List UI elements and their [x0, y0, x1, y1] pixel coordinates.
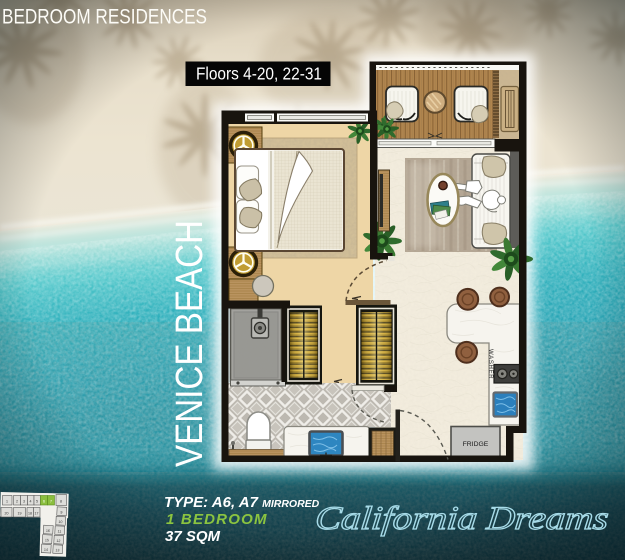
- svg-text:15: 15: [45, 538, 49, 542]
- svg-text:3: 3: [23, 500, 25, 504]
- svg-text:BEDROOM RESIDENCES: BEDROOM RESIDENCES: [2, 6, 207, 29]
- svg-text:13: 13: [55, 548, 59, 552]
- svg-text:2: 2: [16, 500, 18, 504]
- svg-text:20: 20: [5, 512, 9, 516]
- svg-text:1 BEDROOM: 1 BEDROOM: [166, 511, 268, 528]
- svg-text:7: 7: [50, 500, 52, 504]
- svg-text:18: 18: [28, 512, 32, 516]
- svg-text:12: 12: [56, 539, 60, 543]
- svg-text:16: 16: [46, 529, 50, 533]
- svg-text:4: 4: [30, 500, 32, 504]
- svg-text:WASHER: WASHER: [487, 349, 493, 379]
- svg-text:10: 10: [58, 520, 62, 524]
- svg-text:1: 1: [6, 500, 8, 504]
- svg-text:11: 11: [57, 529, 61, 533]
- svg-text:9: 9: [60, 511, 62, 515]
- svg-text:19: 19: [18, 512, 22, 516]
- svg-text:6: 6: [43, 500, 45, 504]
- svg-text:VENICE BEACH: VENICE BEACH: [169, 220, 211, 467]
- svg-text:14: 14: [44, 548, 48, 552]
- svg-text:8: 8: [60, 500, 62, 504]
- svg-text:Floors 4-20, 22-31: Floors 4-20, 22-31: [196, 64, 322, 84]
- svg-text:California Dreams: California Dreams: [314, 501, 611, 537]
- svg-text:17: 17: [35, 512, 39, 516]
- svg-text:37 SQM: 37 SQM: [165, 528, 221, 545]
- svg-text:5: 5: [36, 500, 38, 504]
- svg-text:FRIDGE: FRIDGE: [463, 441, 489, 448]
